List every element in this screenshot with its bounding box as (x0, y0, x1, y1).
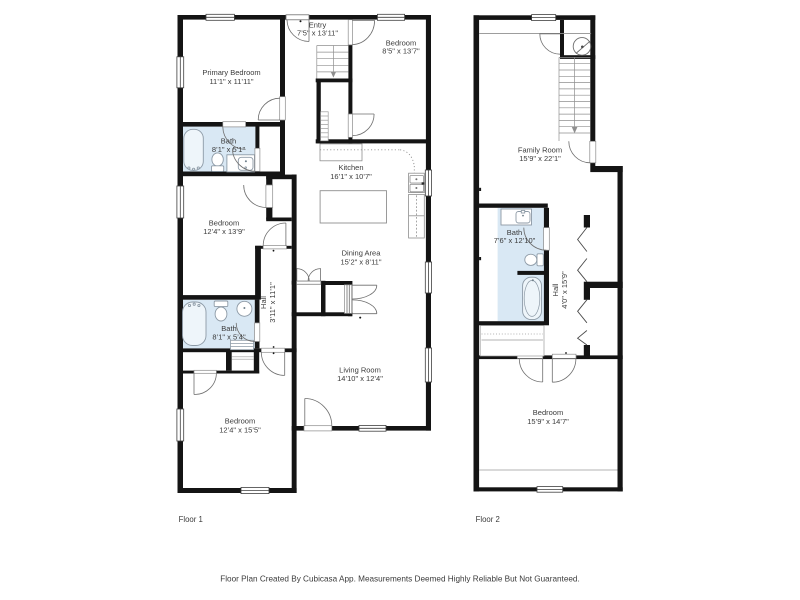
svg-text:15’2" x 8’11": 15’2" x 8’11" (340, 258, 381, 267)
svg-text:16’1" x 10’7": 16’1" x 10’7" (330, 172, 372, 181)
svg-text:Hall: Hall (551, 283, 560, 296)
svg-text:12’4" x 13’9": 12’4" x 13’9" (203, 227, 245, 236)
svg-text:11’1" x 11’11": 11’1" x 11’11" (209, 77, 253, 86)
svg-text:7’6" x 12’10": 7’6" x 12’10" (494, 236, 536, 245)
svg-text:Kitchen: Kitchen (338, 163, 363, 172)
svg-text:Primary Bedroom: Primary Bedroom (202, 68, 260, 77)
svg-text:8’5" x 13’7": 8’5" x 13’7" (382, 47, 420, 56)
svg-text:15’9" x 22’1": 15’9" x 22’1" (519, 154, 561, 163)
svg-text:12’4" x 15’5": 12’4" x 15’5" (219, 426, 261, 435)
svg-text:Floor 1: Floor 1 (179, 515, 203, 524)
svg-text:14’10" x 12’4": 14’10" x 12’4" (337, 374, 383, 383)
svg-text:15’9" x 14’7": 15’9" x 14’7" (527, 417, 569, 426)
svg-text:3’11" x 11’1": 3’11" x 11’1" (268, 282, 277, 323)
svg-text:7’5" x 13’11": 7’5" x 13’11" (297, 29, 338, 38)
svg-text:Bedroom: Bedroom (225, 417, 255, 426)
svg-text:Floor 2: Floor 2 (476, 515, 500, 524)
svg-text:8’1" x 5’1": 8’1" x 5’1" (212, 145, 246, 154)
svg-text:Floor Plan Created By Cubicasa: Floor Plan Created By Cubicasa App. Meas… (220, 575, 580, 584)
svg-text:4’0" x 15’9": 4’0" x 15’9" (560, 271, 569, 309)
svg-text:8’1" x 5’4": 8’1" x 5’4" (212, 333, 246, 342)
svg-text:Hall: Hall (259, 296, 268, 309)
svg-text:Dining Area: Dining Area (342, 249, 382, 258)
svg-text:Bedroom: Bedroom (533, 408, 563, 417)
